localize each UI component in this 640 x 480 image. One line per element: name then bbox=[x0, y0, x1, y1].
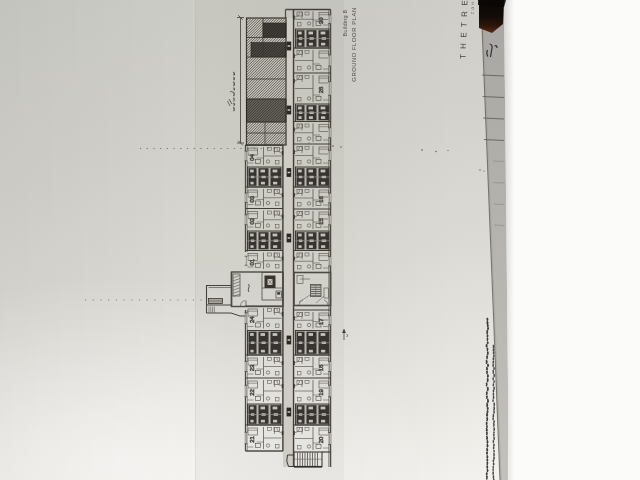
svg-text:18: 18 bbox=[318, 364, 324, 371]
svg-text:01: 01 bbox=[249, 258, 255, 265]
svg-text:19: 19 bbox=[318, 389, 324, 396]
svg-text:15: 15 bbox=[318, 218, 324, 225]
svg-text:17: 17 bbox=[318, 318, 324, 325]
svg-text:GROUND FLOOR PLAN: GROUND FLOOR PLAN bbox=[351, 7, 357, 81]
svg-text:T H E T R E: T H E T R E bbox=[458, 0, 469, 59]
svg-text:20: 20 bbox=[318, 436, 324, 443]
svg-text:23: 23 bbox=[249, 364, 255, 371]
svg-text:22: 22 bbox=[249, 389, 255, 396]
svg-text:21: 21 bbox=[249, 436, 255, 443]
svg-text:02: 02 bbox=[249, 217, 255, 224]
svg-text:30: 30 bbox=[318, 17, 324, 24]
svg-text:Building B: Building B bbox=[342, 9, 348, 36]
svg-text:C O N: C O N bbox=[471, 2, 475, 15]
svg-text:28: 28 bbox=[318, 86, 324, 93]
svg-text:16: 16 bbox=[318, 196, 324, 203]
svg-text:03: 03 bbox=[249, 195, 255, 202]
svg-text:24: 24 bbox=[249, 316, 255, 323]
svg-text:04: 04 bbox=[249, 154, 255, 161]
